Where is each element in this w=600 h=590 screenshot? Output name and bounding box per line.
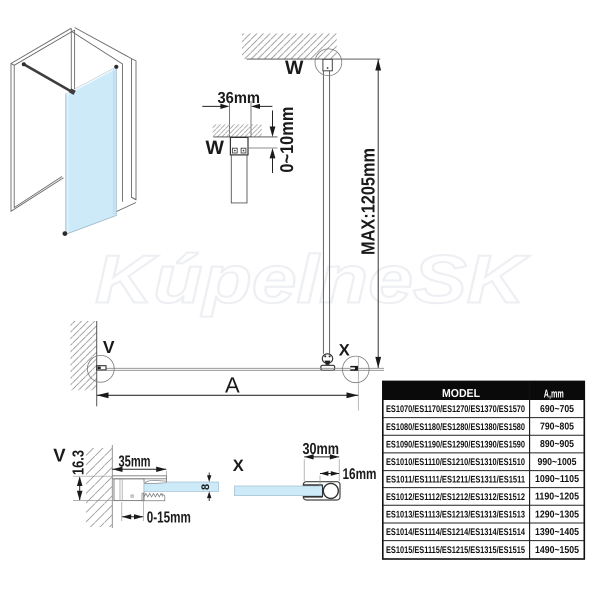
- svg-text:X: X: [339, 341, 350, 359]
- svg-text:KúpelneSK: KúpelneSK: [95, 242, 531, 318]
- svg-text:X: X: [233, 457, 244, 475]
- svg-text:ES1090/ES1190/ES1290/ES1390/ES: ES1090/ES1190/ES1290/ES1390/ES1590: [386, 440, 525, 451]
- svg-text:990~1005: 990~1005: [538, 457, 577, 468]
- svg-text:A,mm: A,mm: [544, 388, 564, 400]
- svg-text:ES1014/ES1114/ES1214/ES1314/ES: ES1014/ES1114/ES1214/ES1314/ES1514: [386, 527, 526, 538]
- svg-text:W: W: [206, 137, 225, 159]
- svg-text:ES1080/ES1180/ES1280/ES1380/ES: ES1080/ES1180/ES1280/ES1380/ES1580: [386, 422, 525, 433]
- svg-text:MODEL: MODEL: [442, 388, 480, 400]
- svg-text:1090~1105: 1090~1105: [535, 474, 579, 485]
- svg-text:690~705: 690~705: [540, 404, 574, 415]
- svg-text:35mm: 35mm: [119, 454, 151, 471]
- svg-text:8: 8: [200, 484, 212, 490]
- svg-text:ES1010/ES1110/ES1210/ES1310/ES: ES1010/ES1110/ES1210/ES1310/ES1510: [386, 457, 525, 468]
- svg-text:V: V: [103, 337, 115, 357]
- svg-text:36mm: 36mm: [218, 90, 261, 107]
- svg-text:1390~1405: 1390~1405: [535, 527, 579, 538]
- svg-text:790~805: 790~805: [540, 422, 574, 433]
- svg-text:A: A: [225, 373, 240, 398]
- svg-text:ES1011/ES1111/ES1211/ES1311/ES: ES1011/ES1111/ES1211/ES1311/ES1511: [386, 475, 526, 486]
- svg-text:1290~1305: 1290~1305: [535, 509, 579, 520]
- svg-text:1490~1505: 1490~1505: [535, 545, 579, 556]
- svg-text:1190~1205: 1190~1205: [535, 492, 579, 503]
- svg-text:890~905: 890~905: [540, 439, 574, 450]
- svg-text:0-15mm: 0-15mm: [147, 509, 191, 526]
- svg-text:16.3: 16.3: [70, 450, 87, 475]
- svg-text:MAX:1205mm: MAX:1205mm: [358, 148, 379, 255]
- svg-text:ES1070/ES1170/ES1270/ES1370/ES: ES1070/ES1170/ES1270/ES1370/ES1570: [386, 404, 525, 415]
- svg-text:ES1013/ES1113/ES1213/ES1313/ES: ES1013/ES1113/ES1213/ES1313/ES1513: [386, 510, 525, 521]
- svg-text:ES1012/ES1112/ES1212/ES1312/ES: ES1012/ES1112/ES1212/ES1312/ES1512: [386, 492, 525, 503]
- svg-text:ES1015/ES1115/ES1215/ES1315/ES: ES1015/ES1115/ES1215/ES1315/ES1515: [386, 545, 526, 556]
- svg-text:V: V: [53, 445, 66, 466]
- svg-text:0~10mm: 0~10mm: [276, 107, 297, 173]
- svg-text:16mm: 16mm: [343, 466, 377, 483]
- svg-text:W: W: [285, 57, 304, 79]
